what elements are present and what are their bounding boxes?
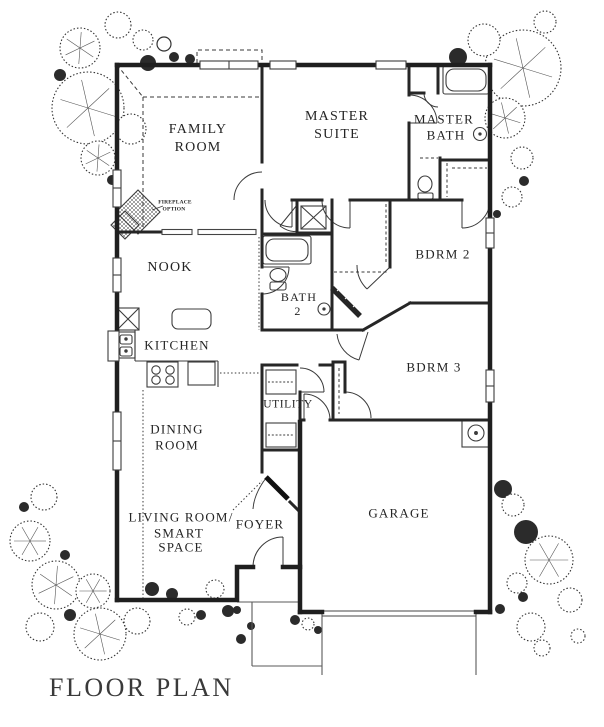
garage-door: [322, 611, 476, 616]
room-label-bdrm3: BDRM 3: [406, 361, 461, 374]
plan-title: FLOOR PLAN: [49, 673, 234, 703]
room-label-utility: UTILITY: [263, 399, 313, 411]
room-label-kitchen: KITCHEN: [144, 339, 209, 352]
room-label-dining-1: DINING: [150, 423, 203, 436]
floor-plan: FAMILY ROOM MASTER SUITE MASTER BATH NOO…: [0, 0, 604, 727]
room-label-garage: GARAGE: [368, 507, 429, 520]
room-label-living-1: LIVING ROOM/: [128, 511, 233, 524]
floor-plan-drawing: [0, 0, 604, 727]
room-label-nook: NOOK: [147, 261, 192, 275]
room-label-living-2: SMART: [154, 527, 204, 540]
room-label-master-bath-1: MASTER: [414, 113, 474, 126]
kitchen-island-icon: [172, 309, 211, 329]
annotation-fireplace-1: FIREPLACE: [158, 200, 192, 206]
room-label-bath2-2: 2: [294, 305, 301, 317]
master-toilet-icon: [418, 176, 432, 192]
hatched-angled-wall: [332, 288, 360, 316]
room-label-bath2-1: BATH: [281, 291, 317, 303]
garage-entry-door-leaf: [266, 477, 288, 499]
room-label-master-suite-2: SUITE: [314, 128, 360, 142]
room-label-foyer: FOYER: [236, 518, 285, 531]
room-label-master-bath-2: BATH: [427, 129, 466, 142]
cased-opening: [162, 230, 256, 235]
room-label-family-room-1: FAMILY: [169, 123, 227, 137]
annotation-fireplace-2: OPTION: [163, 207, 186, 213]
room-label-family-room-2: ROOM: [175, 141, 222, 155]
room-label-bdrm2: BDRM 2: [415, 248, 470, 261]
room-label-master-suite-1: MASTER: [305, 110, 369, 124]
refrigerator-icon: [188, 362, 215, 385]
driveway-walkway: [237, 602, 476, 675]
room-label-dining-2: ROOM: [155, 439, 199, 452]
room-label-living-3: SPACE: [158, 541, 203, 554]
landscaping-trees: [10, 11, 585, 660]
bath2-toilet-icon: [270, 269, 286, 282]
